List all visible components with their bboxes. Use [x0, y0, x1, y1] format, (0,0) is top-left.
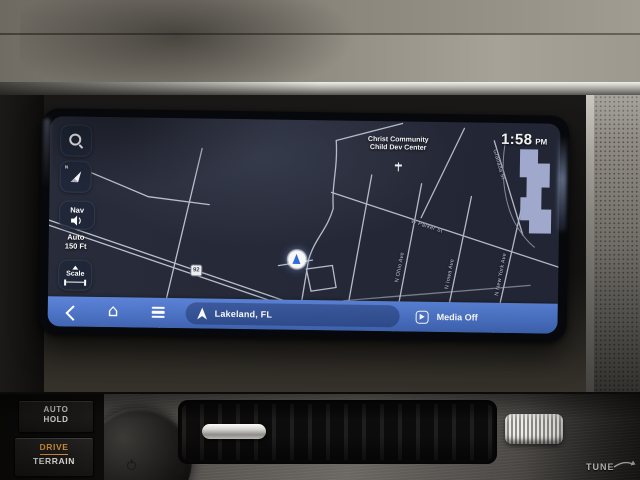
bezel-glare-left: [43, 118, 51, 188]
current-location-label: Lakeland, FL: [215, 309, 273, 320]
search-icon: [69, 134, 83, 148]
search-button[interactable]: [60, 124, 92, 156]
dash-chrome-trim-shadow: [0, 82, 320, 96]
home-icon[interactable]: ⌂: [108, 301, 119, 321]
nav-volume-label: Nav: [70, 205, 84, 214]
poi-label-line2: Child Dev Center: [340, 144, 456, 154]
pillar-chrome-edge: [586, 95, 594, 392]
compass-needle-icon: [67, 167, 85, 185]
map-canvas[interactable]: W Parker St N Ohio Ave N Iowa Ave N New …: [47, 116, 560, 334]
zoom-level-indicator[interactable]: Auto 150 Ft: [59, 232, 93, 251]
bottom-bar: ⌂ Lakeland, FL Media Off: [47, 296, 557, 334]
nav-arrow-icon: [197, 307, 208, 319]
zoom-mode: Auto: [59, 232, 93, 242]
location-pill[interactable]: Lakeland, FL: [186, 302, 400, 327]
clock: 1:58PM: [501, 131, 547, 150]
speaker-icon: [70, 215, 83, 225]
console-shading: [0, 394, 640, 480]
media-status-button[interactable]: Media Off: [415, 302, 477, 333]
center-console: AUTO HOLD DRIVE TERRAIN TUNE: [0, 392, 640, 480]
scale-ruler-icon: [64, 279, 86, 285]
bezel-glare-right: [557, 136, 567, 232]
dash-left-edge: [0, 95, 44, 392]
up-arrow-icon: [72, 265, 78, 269]
infotainment-screen-bezel: W Parker St N Ohio Ave N Iowa Ave N New …: [38, 108, 569, 342]
nav-volume-button[interactable]: Nav: [59, 200, 95, 230]
speaker-grille-shade: [594, 95, 640, 392]
clock-time: 1:58: [501, 131, 532, 148]
poi-label: Christ Community Child Dev Center: [340, 136, 456, 155]
church-cross-icon: [395, 162, 402, 171]
compass-north-label: N: [65, 164, 68, 169]
back-icon[interactable]: [65, 305, 81, 321]
scale-button[interactable]: Scale: [58, 259, 92, 291]
route-shield: 92: [190, 264, 202, 276]
menu-icon[interactable]: [152, 307, 165, 320]
scale-label: Scale: [66, 270, 84, 277]
car-dashboard-photo: W Parker St N Ohio Ave N Iowa Ave N New …: [0, 0, 640, 480]
play-icon: [416, 310, 429, 323]
compass-button[interactable]: N: [59, 160, 91, 192]
media-status-label: Media Off: [437, 312, 478, 323]
clock-meridiem: PM: [535, 137, 547, 146]
lake-polygon: [519, 149, 552, 233]
zoom-scale-value: 150 Ft: [59, 242, 93, 252]
